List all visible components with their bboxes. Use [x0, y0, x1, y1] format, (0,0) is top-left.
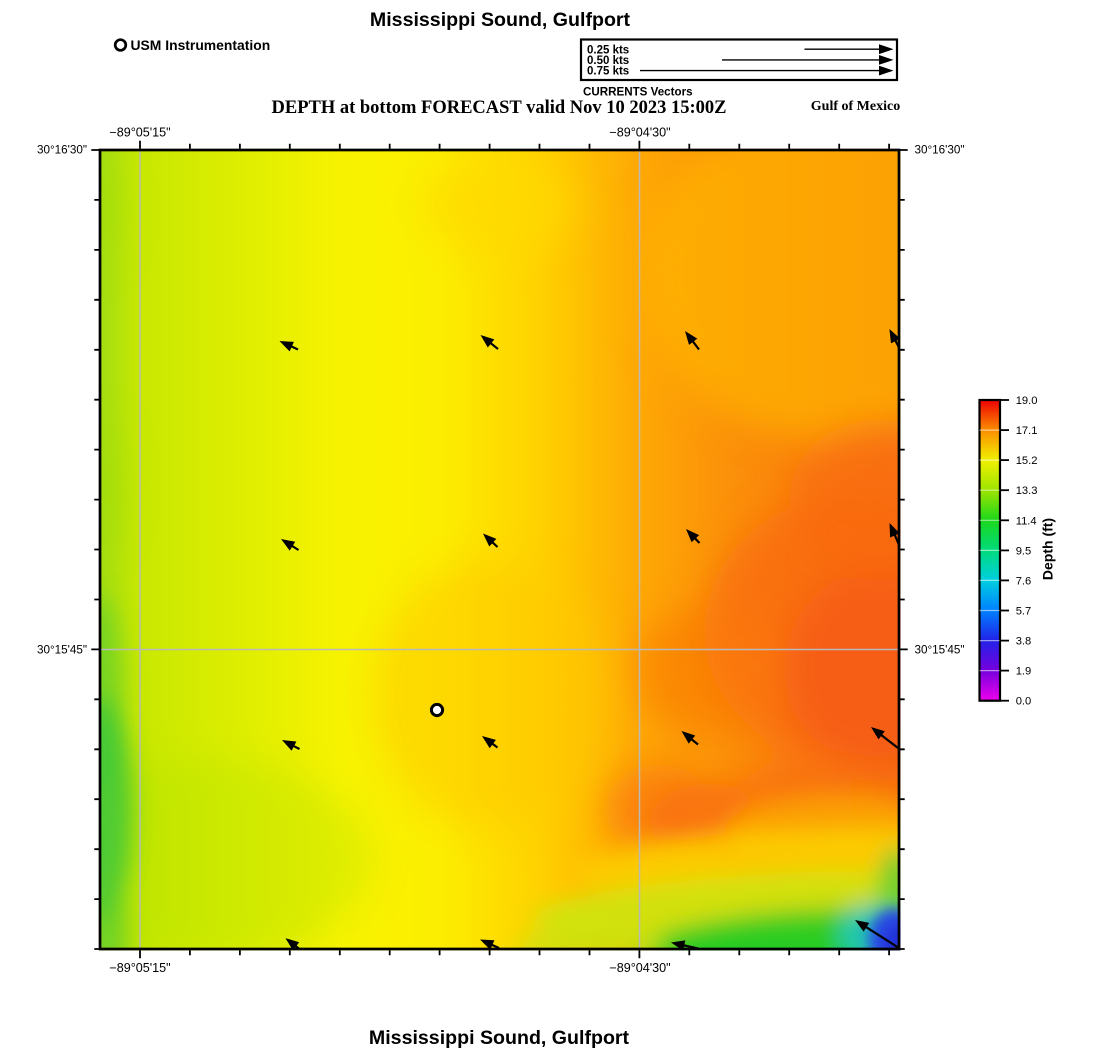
svg-text:USM Instrumentation: USM Instrumentation	[131, 37, 271, 53]
svg-text:3.8: 3.8	[1016, 636, 1032, 648]
svg-text:−89°05'15": −89°05'15"	[109, 126, 170, 140]
svg-text:Depth (ft): Depth (ft)	[1040, 518, 1056, 580]
svg-text:−89°04'30": −89°04'30"	[609, 126, 670, 140]
svg-text:5.7: 5.7	[1016, 606, 1032, 618]
svg-text:30°15'45": 30°15'45"	[37, 644, 87, 657]
svg-text:30°15'45": 30°15'45"	[915, 644, 965, 657]
svg-text:30°16'30": 30°16'30"	[37, 144, 87, 157]
svg-text:DEPTH at bottom FORECAST valid: DEPTH at bottom FORECAST valid Nov 10 20…	[272, 98, 727, 118]
svg-text:0.0: 0.0	[1016, 696, 1032, 708]
svg-text:9.5: 9.5	[1016, 545, 1032, 557]
svg-text:Mississippi Sound, Gulfport: Mississippi Sound, Gulfport	[370, 9, 631, 31]
svg-text:0.75 kts: 0.75 kts	[587, 66, 629, 78]
svg-text:13.3: 13.3	[1016, 485, 1038, 497]
svg-text:30°16'30": 30°16'30"	[915, 144, 965, 157]
svg-text:Gulf of Mexico: Gulf of Mexico	[811, 99, 900, 114]
svg-text:17.1: 17.1	[1016, 425, 1038, 437]
svg-text:15.2: 15.2	[1016, 455, 1038, 467]
svg-text:7.6: 7.6	[1016, 575, 1032, 587]
svg-text:11.4: 11.4	[1016, 515, 1037, 527]
svg-text:19.0: 19.0	[1016, 395, 1038, 407]
svg-text:Mississippi Sound, Gulfport: Mississippi Sound, Gulfport	[369, 1027, 630, 1049]
svg-text:−89°04'30": −89°04'30"	[609, 961, 670, 975]
svg-text:CURRENTS Vectors: CURRENTS Vectors	[583, 86, 693, 99]
svg-text:1.9: 1.9	[1016, 666, 1032, 678]
svg-text:−89°05'15": −89°05'15"	[109, 961, 170, 975]
